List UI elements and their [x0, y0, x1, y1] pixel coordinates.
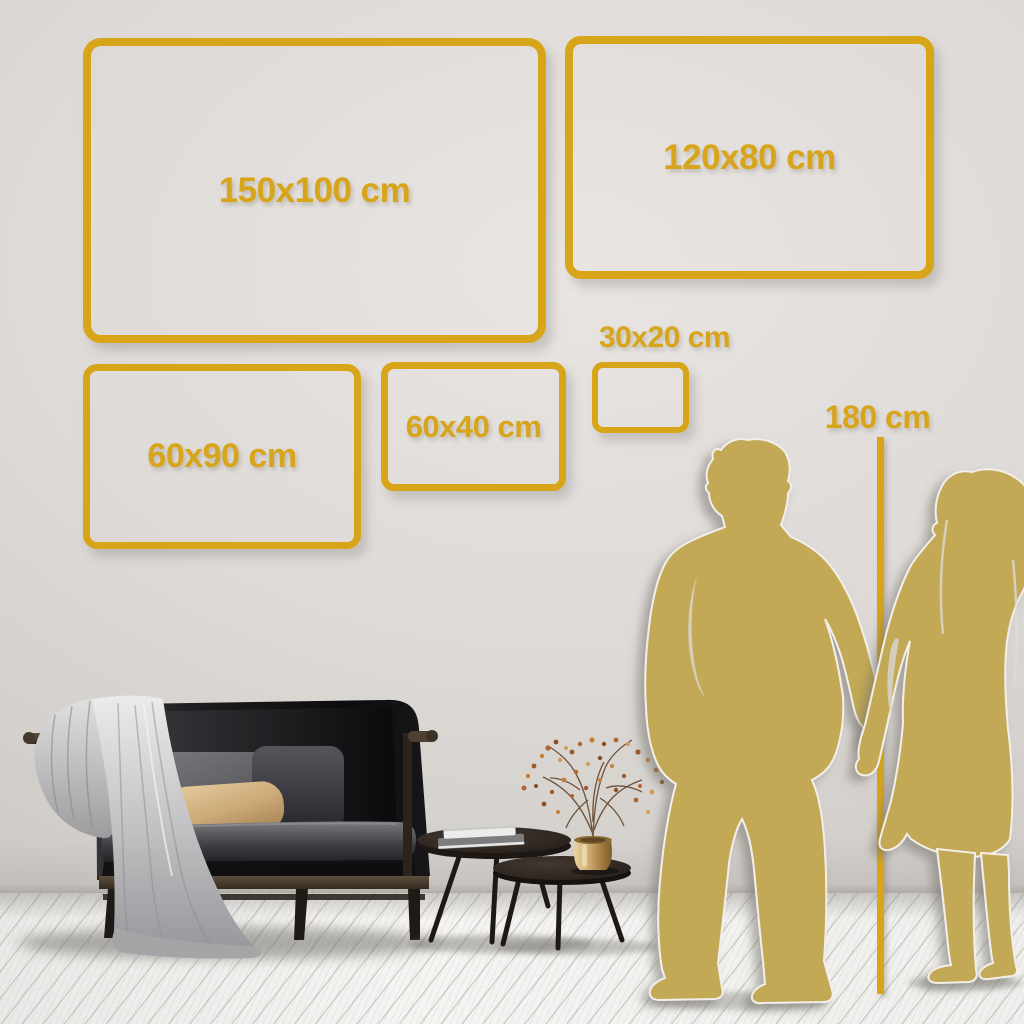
- table-shadow: [496, 939, 660, 955]
- rail-cap-right: [426, 730, 438, 742]
- woman-silhouette: [856, 469, 1024, 983]
- rail-cap-left: [23, 732, 35, 744]
- coffee-tables-illustration: [408, 737, 664, 955]
- sofa-illustration: [18, 696, 442, 959]
- sofa-right-post: [403, 733, 412, 880]
- wall-art-size-guide: 150x100 cm 120x80 cm 60x90 cm 60x40 cm 3…: [0, 0, 1024, 1024]
- sofa-leg: [408, 889, 420, 940]
- brass-vase: [571, 836, 619, 875]
- room-illustration: [0, 0, 1024, 1024]
- dried-plant: [522, 737, 665, 838]
- man-silhouette: [645, 439, 887, 1003]
